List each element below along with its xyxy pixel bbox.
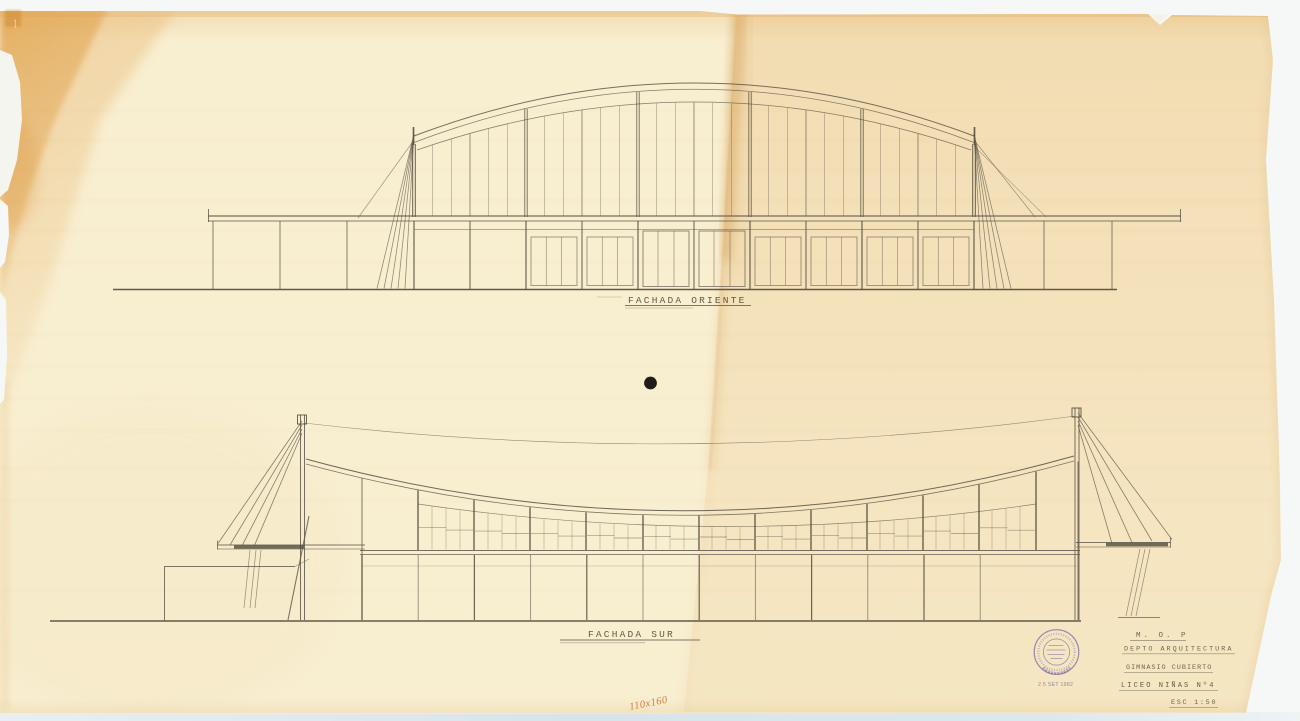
svg-text:ESC 1:50: ESC 1:50 <box>1171 699 1217 707</box>
svg-text:1: 1 <box>12 16 19 31</box>
svg-text:GIMNASIO CUBIERTO: GIMNASIO CUBIERTO <box>1126 664 1212 672</box>
svg-text:FACHADA SUR: FACHADA SUR <box>588 629 675 640</box>
svg-text:DEPTO ARQUITECTURA: DEPTO ARQUITECTURA <box>1124 646 1233 654</box>
svg-text:FACHADA ORIENTE: FACHADA ORIENTE <box>628 295 747 306</box>
svg-text:M. O. P: M. O. P <box>1136 632 1189 640</box>
svg-text:LICEO NIÑAS Nº4: LICEO NIÑAS Nº4 <box>1121 681 1216 690</box>
svg-text:2 5 SET 1982: 2 5 SET 1982 <box>1038 682 1073 688</box>
